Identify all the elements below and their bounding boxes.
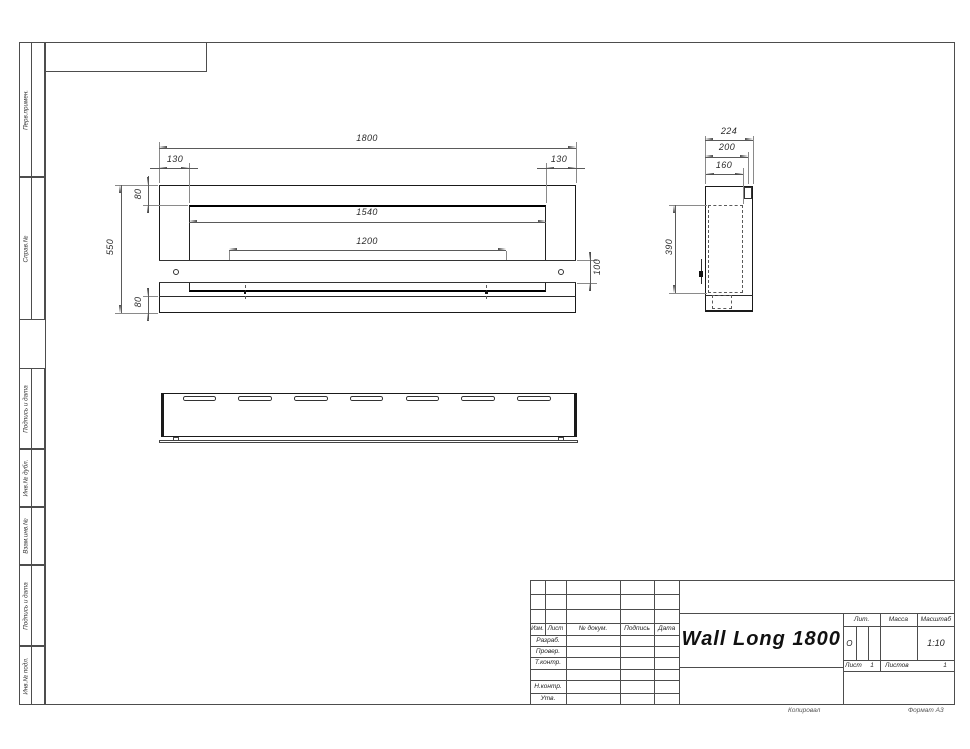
dim-label-200: 200 [707,142,747,152]
dim-line-390 [675,205,676,293]
dim-label-1800: 1800 [342,133,392,143]
margin-label-sprav-no: Справ.№ [23,235,30,262]
dim-arrow [589,283,591,291]
title-block-line [530,669,679,670]
dim-arrow [147,288,149,296]
margin-box-inv-dubl: Инв.№ дубл. [19,449,45,507]
dim-arrow [568,167,576,169]
margin-label-perv-primen: Перв.примен. [23,89,30,129]
dim-arrow [745,138,753,140]
dim-arrow [735,173,743,175]
bottom-view-front-strip [159,440,578,443]
margin-box-divider [31,647,32,704]
margin-label-vzam-inv: Взам.инв.№ [23,518,30,553]
title-block-line [868,626,869,660]
dim-label-80-top: 80 [133,179,143,209]
drawing-sheet: Перв.примен. Справ.№ Подпись и дата Инв.… [0,0,970,749]
extension-line [506,251,507,260]
margin-box-podpis-data-1: Подпись и дата [19,368,45,449]
title-block-line [654,580,655,705]
margin-label-inv-dubl: Инв.№ дубл. [23,460,30,497]
tb-lit-label: Лит. [843,613,880,626]
dim-label-390: 390 [664,232,674,262]
dim-arrow [147,177,149,185]
tb-header-list: Лист [545,623,566,634]
extension-line [143,205,188,206]
margin-box-divider [31,450,32,506]
dim-label-130-right: 130 [539,154,579,164]
front-view-burner-band [159,260,575,283]
dim-arrow [706,173,714,175]
side-view-top-bracket [744,187,752,199]
margin-box-vzam-inv: Взам.инв.№ [19,507,45,565]
margin-label-podpis-data-1: Подпись и дата [23,385,30,433]
extension-line [577,283,597,284]
tb-row-tkontr: Т.контр. [530,657,566,668]
dim-arrow [159,167,167,169]
dim-label-1200: 1200 [342,236,392,246]
margin-box-inv-podl: Инв.№ подл. [19,646,45,705]
tb-sheet-label: Лист [845,660,867,671]
dim-line-130-left [150,168,198,169]
tb-sheet-value: 1 [866,660,878,671]
margin-label-inv-podl: Инв.№ подл. [23,657,30,694]
dim-label-224: 224 [709,126,749,136]
dim-label-160: 160 [704,160,744,170]
tb-row-utv: Утв. [530,693,566,706]
margin-box-sprav-no: Справ.№ [19,177,45,320]
dim-line-1540 [189,222,545,223]
vent-slot [350,396,383,401]
tb-header-data: Дата [654,623,679,634]
tb-header-podpis: Подпись [620,623,654,634]
dim-line-130-right [537,168,585,169]
dim-arrow [119,185,121,193]
title-block-line [566,580,567,705]
margin-box-divider [31,369,32,448]
tb-scale-label: Масштаб [917,613,955,626]
extension-line [669,293,707,294]
vent-slot [294,396,327,401]
dim-arrow [589,252,591,260]
front-view-lower-edge [159,296,575,297]
vent-slot [238,396,271,401]
vent-slot [406,396,439,401]
tb-row-nkontr: Н.контр. [530,680,566,693]
margin-box-divider [31,43,32,176]
dim-arrow [568,146,576,148]
dim-label-100: 100 [592,252,602,282]
margin-box-divider [31,178,32,319]
vent-slot [461,396,494,401]
margin-box-divider [31,508,32,564]
title-block-line [679,667,843,668]
side-view-hidden-tray [712,295,732,309]
dim-arrow [705,155,713,157]
dim-line-1200 [229,250,505,251]
dim-arrow [181,167,189,169]
hole-mark-right [485,291,488,294]
title-block-line [620,580,621,705]
footer-copied: Копировал [788,707,820,714]
extension-line [748,152,749,184]
dim-arrow [546,167,554,169]
tb-lit-value: О [843,626,855,660]
dim-label-550: 550 [105,232,115,262]
side-view-wall-bracket [699,271,704,277]
tb-row-prover: Провер. [530,646,566,657]
vent-slot [517,396,550,401]
dim-arrow [159,146,167,148]
dim-line-550 [121,185,122,313]
mount-hole-left [173,269,179,275]
margin-label-podpis-data-2: Подпись и дата [23,582,30,630]
tb-scale-value: 1:10 [917,626,955,660]
dim-label-80-bottom: 80 [133,287,143,317]
bottom-view-tab-right [558,437,564,440]
extension-line [753,136,754,184]
dim-arrow [119,305,121,313]
tb-header-doc: № докум. [566,623,620,634]
bottom-view-outline [161,393,577,438]
frame-binding-edge [45,42,46,705]
title-block-line [856,626,857,660]
tb-mass-label: Масса [880,613,917,626]
dim-arrow [147,313,149,321]
dim-label-130-left: 130 [155,154,195,164]
hole-mark-left [244,291,247,294]
dim-arrow [673,205,675,213]
extension-line [229,251,230,260]
title-block-line [843,671,955,672]
margin-box-perv-primen: Перв.примен. [19,42,45,177]
tb-sheets-value: 1 [938,660,952,671]
margin-box-podpis-data-2: Подпись и дата [19,565,45,646]
top-left-box [45,42,207,72]
dim-arrow [147,205,149,213]
extension-line [743,168,744,204]
dim-label-1540: 1540 [342,207,392,217]
vent-slot [183,396,216,401]
dim-arrow [538,220,546,222]
dim-line-1800 [159,148,575,149]
dim-arrow [229,248,237,250]
title-block-line [530,594,679,595]
side-view-hidden-cavity [708,205,742,293]
footer-format: Формат А3 [908,707,944,714]
tb-header-izm: Изм. [530,623,545,634]
mount-hole-right [558,269,564,275]
dim-arrow [705,138,713,140]
dim-arrow [189,220,197,222]
dim-arrow [673,285,675,293]
dim-arrow [740,155,748,157]
tb-sheets-label: Листов [885,660,915,671]
extension-line [143,296,158,297]
dim-arrow [498,248,506,250]
title-block-line [530,580,955,581]
bottom-view-tab-left [173,437,179,440]
drawing-title: Wall Long 1800 [679,613,843,666]
tb-row-razrab: Разраб. [530,635,566,646]
margin-box-divider [31,566,32,645]
title-block-line [530,609,679,610]
